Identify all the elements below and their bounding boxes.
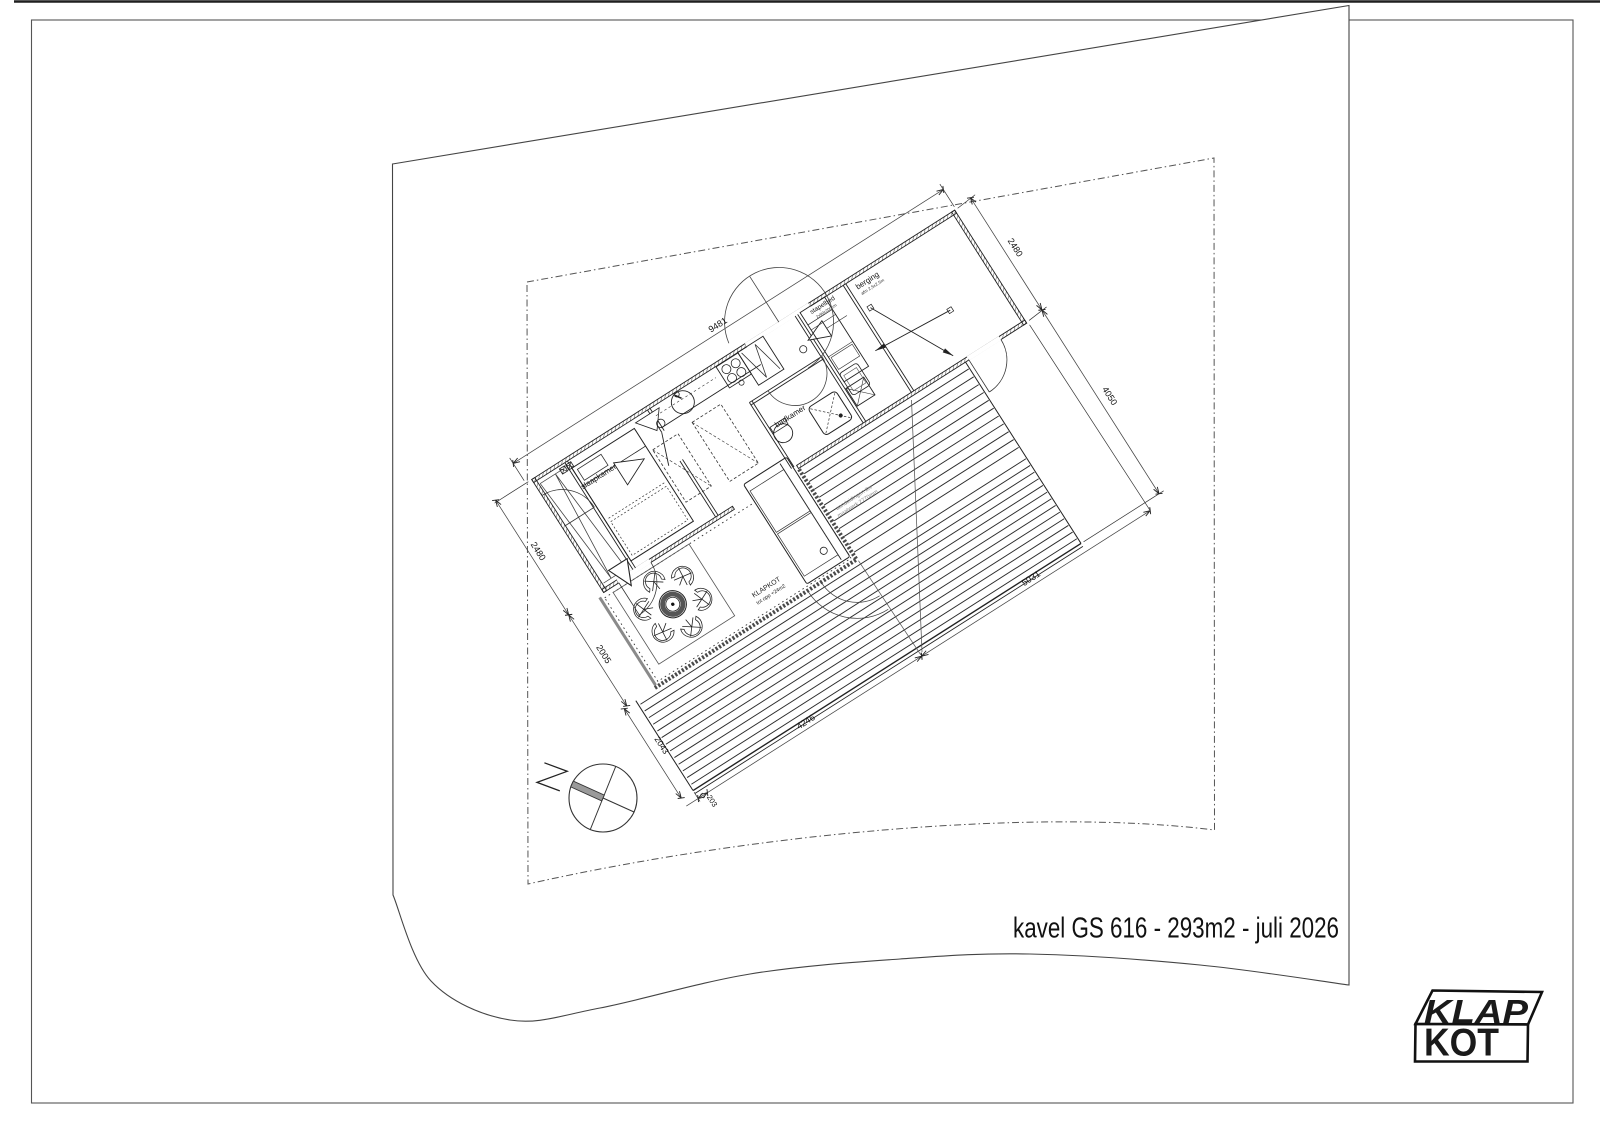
svg-text:KOT: KOT <box>1424 1022 1499 1065</box>
svg-text:kavel GS 616 - 293m2 - juli 20: kavel GS 616 - 293m2 - juli 2026 <box>1013 913 1339 945</box>
